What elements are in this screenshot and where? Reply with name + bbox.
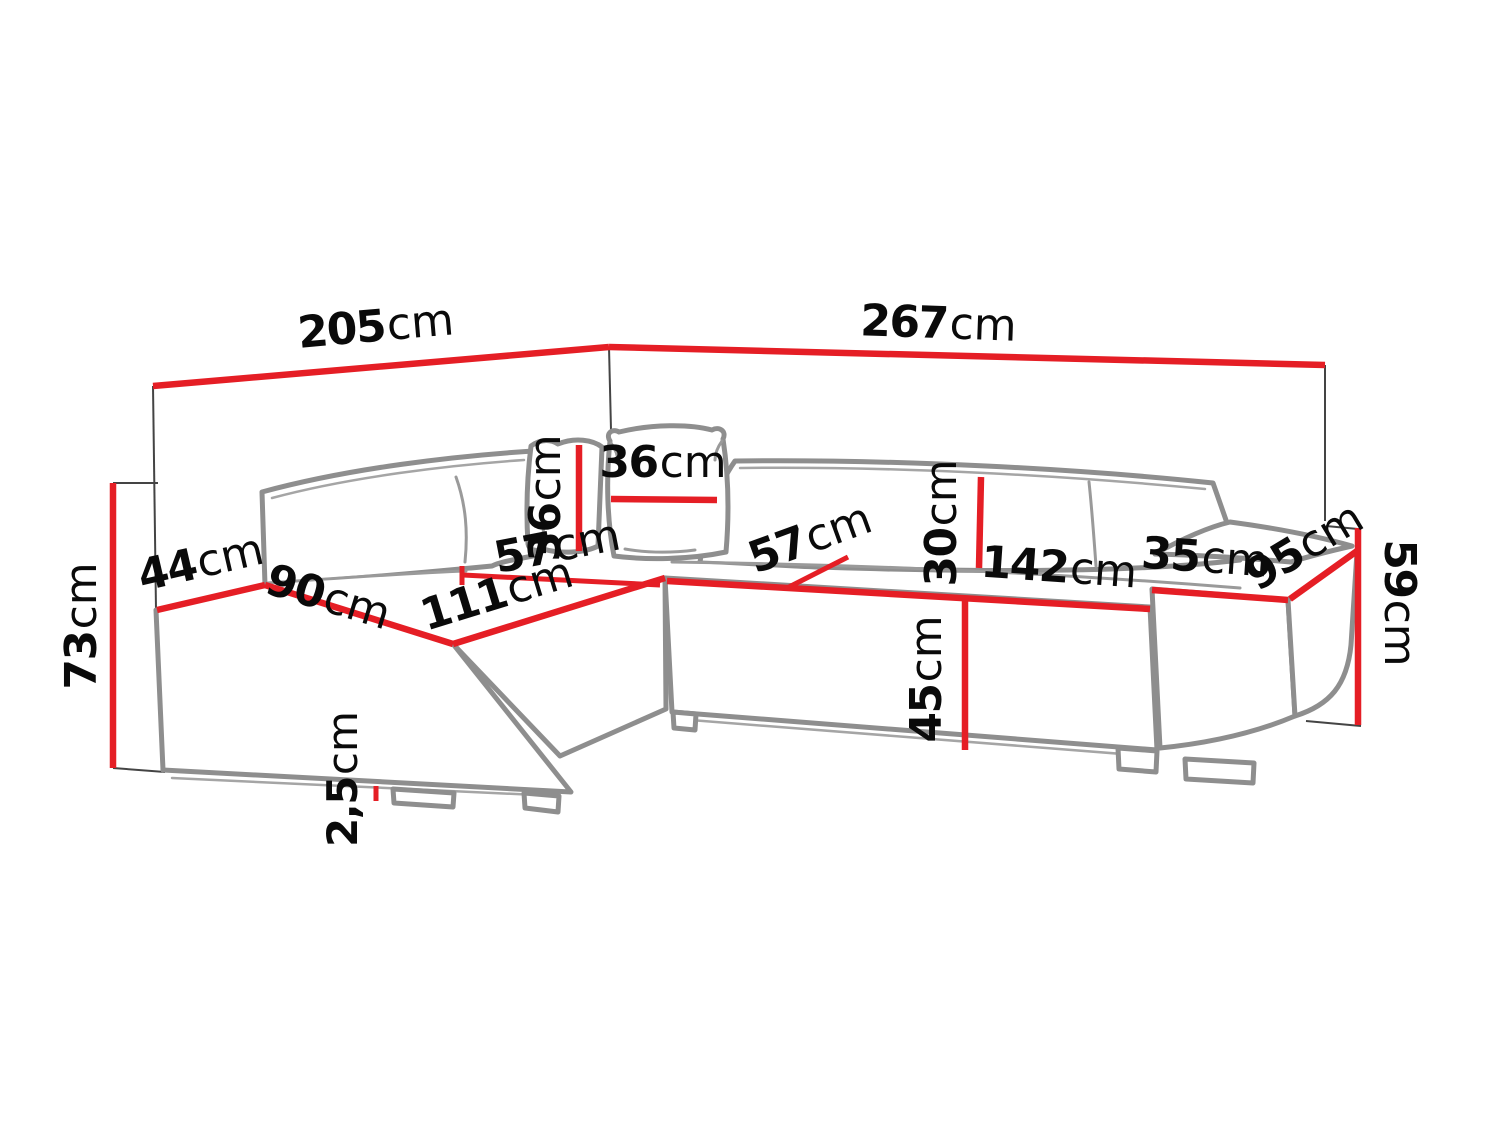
armrest-front-face bbox=[1152, 589, 1295, 748]
dim-label-36-horizontal: 36cm bbox=[599, 437, 726, 488]
sofa-dimension-diagram: 205cm 267cm 73cm 44cm 90cm 111cm 57cm 57… bbox=[0, 0, 1500, 1125]
dim-label-205: 205cm bbox=[296, 294, 456, 358]
dim-line-36-horizontal bbox=[611, 499, 717, 500]
sofa-foot bbox=[393, 789, 454, 807]
dim-label-59: 59cm bbox=[1374, 539, 1425, 666]
dim-label-45: 45cm bbox=[901, 615, 952, 742]
dim-label-73: 73cm bbox=[56, 562, 107, 689]
dim-line-205 bbox=[153, 347, 609, 386]
extension-corner-vertical bbox=[609, 347, 611, 430]
sofa-foot bbox=[524, 793, 559, 812]
dim-label-36-vertical: 36cm bbox=[520, 434, 571, 561]
dim-label-30: 30cm bbox=[916, 459, 967, 586]
dim-label-2-5: 2,5cm bbox=[318, 711, 367, 847]
diagram-canvas: 205cm 267cm 73cm 44cm 90cm 111cm 57cm 57… bbox=[0, 0, 1500, 1125]
sofa-foot bbox=[673, 712, 696, 730]
extension-73-bottom bbox=[113, 768, 165, 772]
dim-label-142: 142cm bbox=[979, 537, 1139, 599]
sofa-foot bbox=[1118, 748, 1157, 772]
sofa-foot bbox=[1185, 759, 1254, 783]
extension-59-bottom bbox=[1306, 721, 1361, 726]
dim-label-267: 267cm bbox=[859, 295, 1017, 351]
